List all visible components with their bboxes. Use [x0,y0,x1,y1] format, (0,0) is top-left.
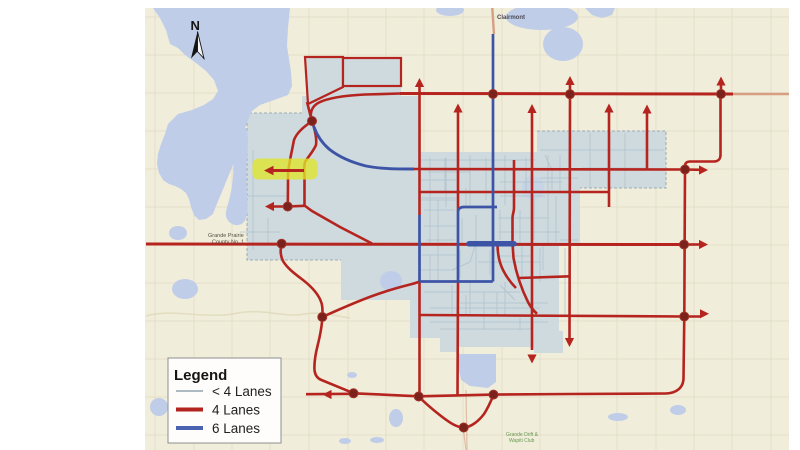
svg-text:Wapiti Club: Wapiti Club [509,438,535,444]
svg-text:N: N [191,18,200,33]
svg-text:County No. 1: County No. 1 [212,240,244,246]
svg-text:Legend: Legend [174,367,227,384]
svg-text:< 4 Lanes: < 4 Lanes [212,384,272,399]
svg-text:4 Lanes: 4 Lanes [212,403,260,418]
svg-text:6 Lanes: 6 Lanes [212,421,260,436]
svg-text:Clairmont: Clairmont [497,15,525,21]
svg-text:Grande Prairie: Grande Prairie [208,233,244,239]
